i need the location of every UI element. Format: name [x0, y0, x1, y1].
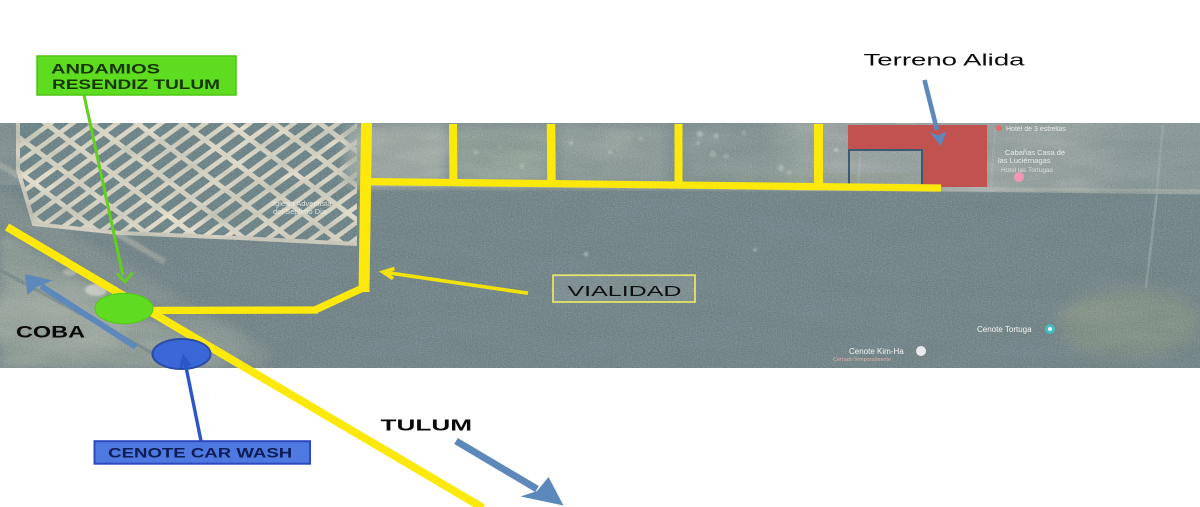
svg-text:Terreno Alida: Terreno Alida	[864, 52, 1026, 70]
svg-text:Hotel las Tortugas: Hotel las Tortugas	[1001, 167, 1054, 174]
svg-text:del Septimo Dia: del Septimo Dia	[273, 207, 327, 216]
svg-text:TULUM: TULUM	[381, 418, 473, 435]
svg-text:ANDAMIOS: ANDAMIOS	[51, 62, 160, 77]
svg-text:RESENDIZ TULUM: RESENDIZ TULUM	[52, 77, 220, 92]
svg-text:Cenote Kim-Ha: Cenote Kim-Ha	[849, 347, 904, 356]
svg-text:COBA: COBA	[16, 324, 85, 342]
svg-text:Cenote Tortuga: Cenote Tortuga	[977, 325, 1032, 334]
svg-text:CENOTE CAR WASH: CENOTE CAR WASH	[108, 446, 292, 461]
svg-text:Cerrado temporalmente: Cerrado temporalmente	[833, 357, 891, 363]
svg-text:VIALIDAD: VIALIDAD	[568, 284, 682, 300]
svg-text:Hotel de 3 estrellas: Hotel de 3 estrellas	[1006, 126, 1066, 133]
svg-text:las Luciérnagas: las Luciérnagas	[998, 156, 1051, 165]
